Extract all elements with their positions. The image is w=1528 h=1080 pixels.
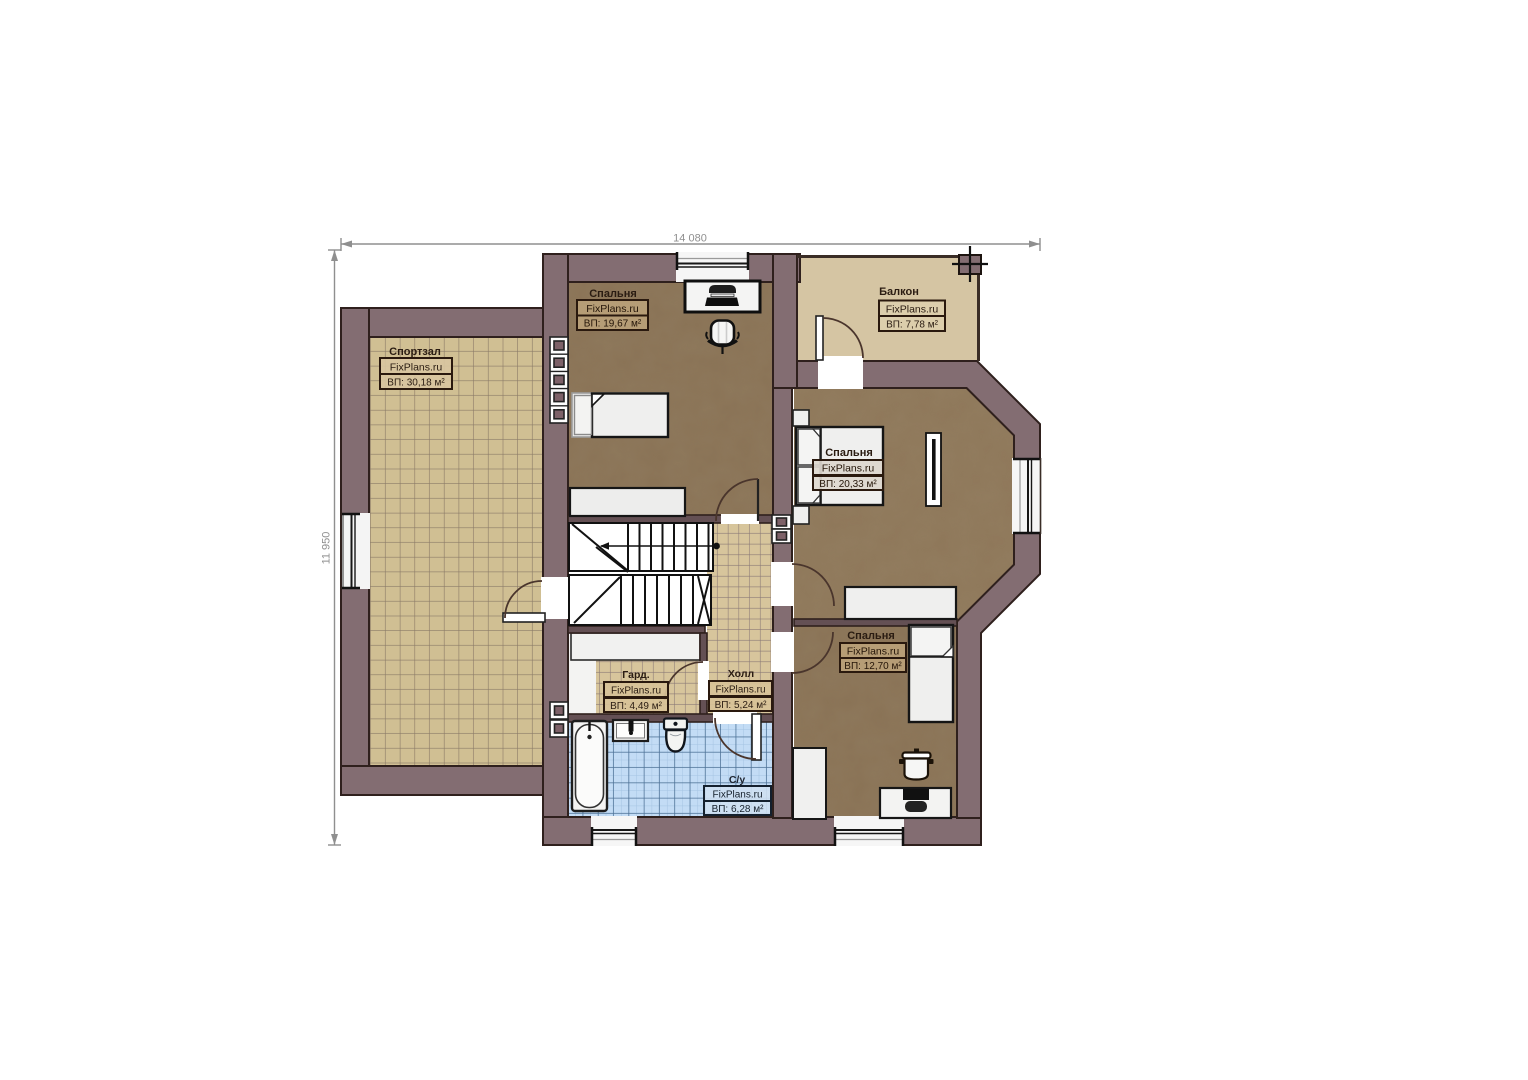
svg-text:ВП: 19,67 м²: ВП: 19,67 м² (584, 319, 642, 330)
svg-text:FixPlans.ru: FixPlans.ru (822, 463, 875, 475)
svg-text:FixPlans.ru: FixPlans.ru (712, 790, 762, 801)
svg-text:Гард.: Гард. (622, 669, 649, 681)
svg-text:Балкон: Балкон (879, 286, 919, 298)
svg-text:FixPlans.ru: FixPlans.ru (390, 362, 443, 374)
svg-text:ВП: 6,28 м²: ВП: 6,28 м² (712, 804, 765, 815)
svg-text:ВП: 4,49 м²: ВП: 4,49 м² (610, 701, 663, 712)
svg-text:Холл: Холл (728, 668, 754, 680)
svg-text:Спортзал: Спортзал (389, 346, 441, 358)
svg-text:Спальня: Спальня (847, 630, 895, 642)
svg-text:FixPlans.ru: FixPlans.ru (886, 304, 939, 316)
svg-text:ВП: 30,18 м²: ВП: 30,18 м² (387, 378, 445, 389)
svg-text:11 950: 11 950 (321, 532, 333, 565)
svg-text:ВП: 20,33 м²: ВП: 20,33 м² (819, 479, 877, 490)
svg-text:С/у: С/у (729, 774, 746, 786)
svg-text:ВП: 12,70 м²: ВП: 12,70 м² (844, 661, 902, 672)
svg-text:Спальня: Спальня (589, 288, 637, 300)
svg-text:ВП: 5,24 м²: ВП: 5,24 м² (715, 700, 768, 711)
svg-text:FixPlans.ru: FixPlans.ru (611, 686, 661, 697)
svg-text:Спальня: Спальня (825, 447, 873, 459)
svg-text:ВП: 7,78 м²: ВП: 7,78 м² (886, 320, 939, 331)
svg-text:FixPlans.ru: FixPlans.ru (715, 685, 765, 696)
svg-text:FixPlans.ru: FixPlans.ru (847, 646, 900, 658)
svg-text:14 080: 14 080 (673, 233, 707, 245)
svg-text:FixPlans.ru: FixPlans.ru (586, 303, 639, 315)
